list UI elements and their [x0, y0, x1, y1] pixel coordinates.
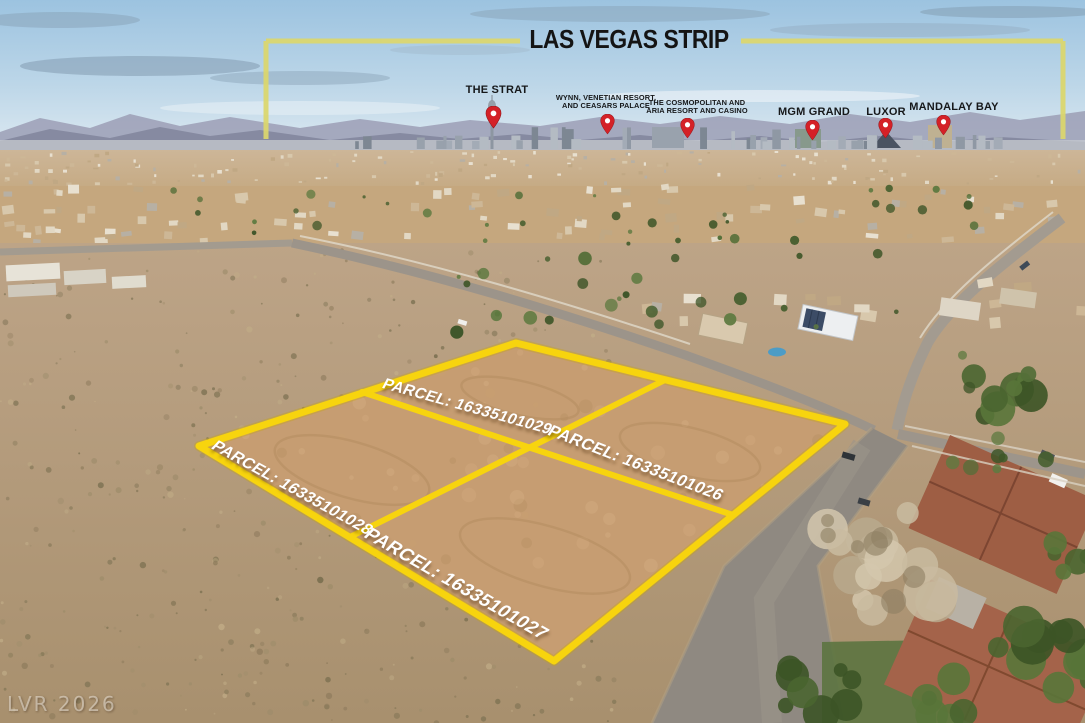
- map-pin-icon: [485, 106, 502, 129]
- mid-suburb-band: [0, 186, 1085, 244]
- far-suburb-band: [0, 150, 1085, 186]
- landmark-label-cosmopolitan-aria: THE COSMOPOLITAN ANDARIA RESORT AND CASI…: [646, 99, 747, 116]
- landmark-label-the-strat: THE STRAT: [466, 84, 529, 96]
- swimming-pool: [768, 348, 786, 357]
- map-pin-icon: [936, 115, 951, 136]
- landmark-label-mandalay-bay: MANDALAY BAY: [909, 101, 998, 113]
- landmark-label-luxor: LUXOR: [866, 106, 906, 118]
- map-pin-icon: [878, 118, 893, 139]
- page-title: LAS VEGAS STRIP: [529, 24, 728, 55]
- map-pin-icon: [680, 118, 695, 139]
- watermark: LVR 2026: [7, 692, 117, 716]
- landmark-label-mgm-grand: MGM GRAND: [778, 106, 850, 118]
- landmark-label-wynn-venetian-caesars: WYNN, VENETIAN RESORT,AND CEASARS PALACE: [556, 94, 656, 111]
- map-pin-icon: [600, 114, 615, 135]
- map-pin-icon: [805, 120, 820, 141]
- aerial-listing-photo: LAS VEGAS STRIP THE STRAT WYNN, VENETIAN…: [0, 0, 1085, 723]
